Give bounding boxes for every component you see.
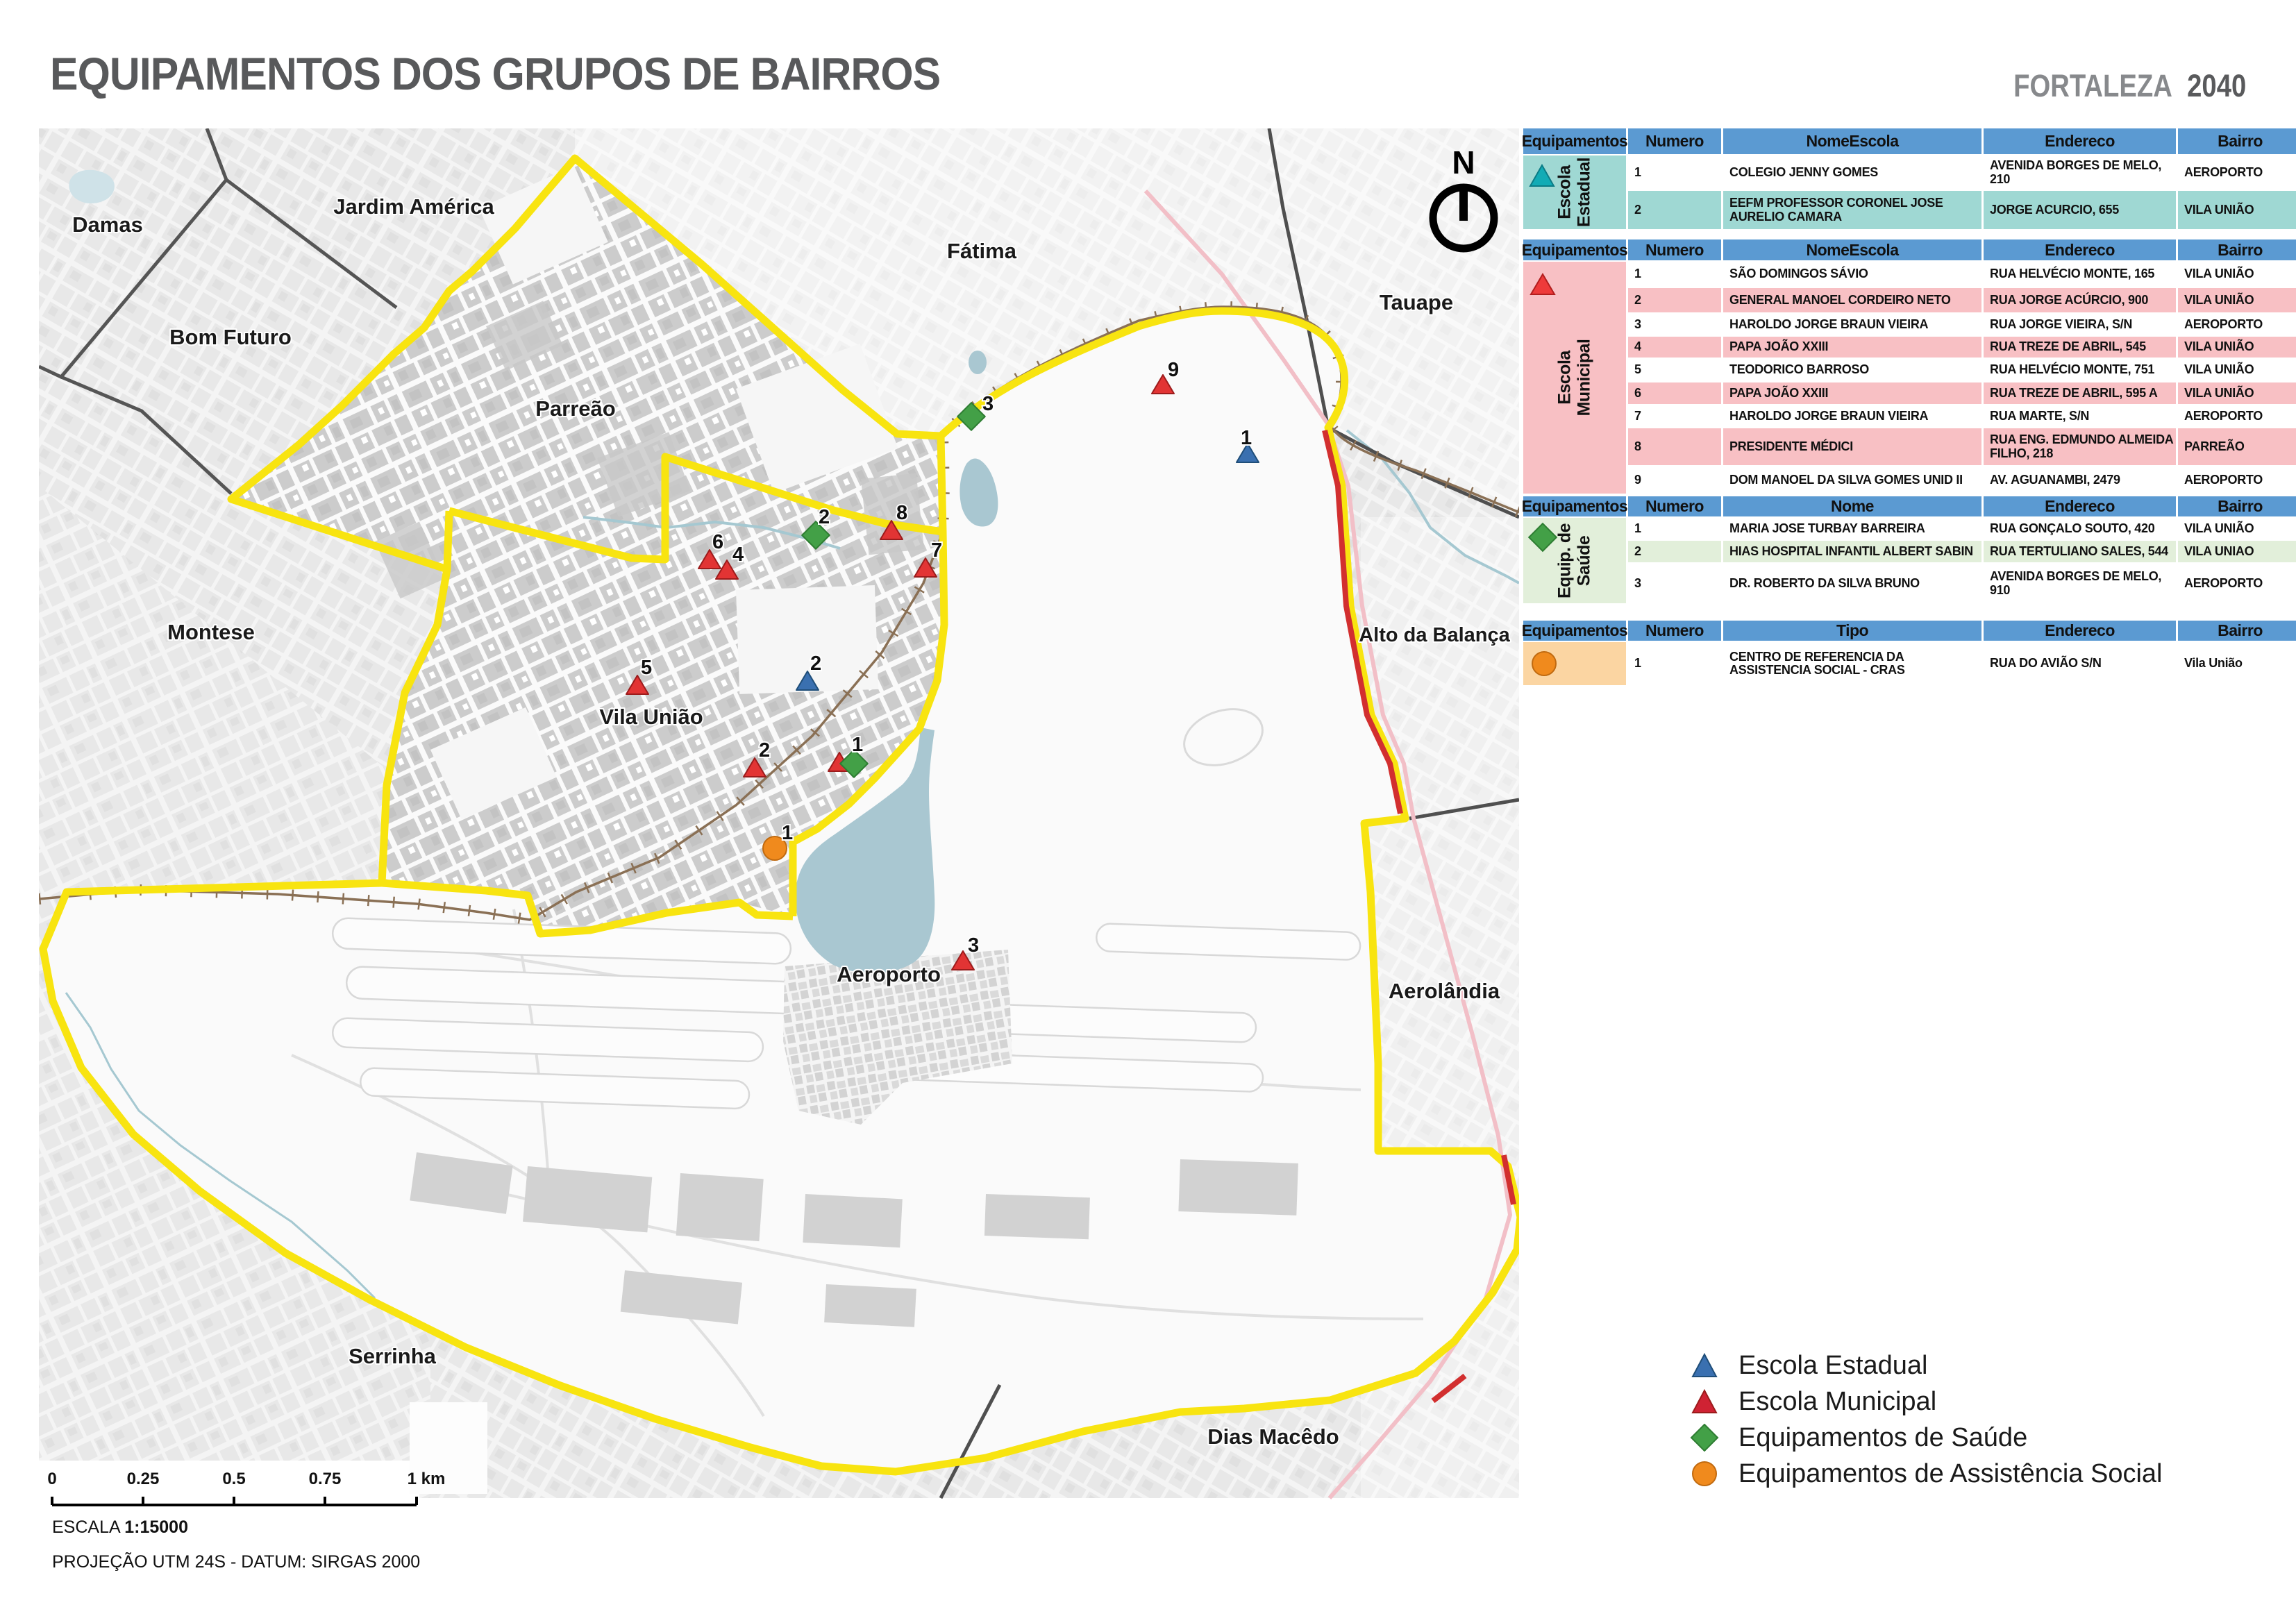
svg-text:N: N	[1452, 144, 1475, 180]
svg-text:Tauape: Tauape	[1380, 290, 1453, 314]
svg-text:PROJEÇÃO UTM 24S - DATUM: SIRG: PROJEÇÃO UTM 24S - DATUM: SIRGAS 2000	[52, 1551, 420, 1572]
svg-text:Alto da Balança: Alto da Balança	[1359, 624, 1510, 646]
svg-text:9: 9	[1168, 359, 1179, 381]
svg-text:Aeroporto: Aeroporto	[837, 962, 941, 986]
svg-text:3: 3	[968, 934, 979, 957]
svg-text:Aerolândia: Aerolândia	[1389, 979, 1500, 1003]
svg-text:Serrinha: Serrinha	[349, 1344, 437, 1368]
svg-text:2: 2	[810, 653, 821, 675]
svg-text:5: 5	[641, 657, 652, 679]
svg-text:1: 1	[852, 734, 863, 756]
svg-text:2: 2	[819, 506, 830, 528]
svg-text:6: 6	[712, 531, 723, 553]
svg-text:Damas: Damas	[72, 212, 143, 237]
svg-text:8: 8	[896, 502, 907, 524]
svg-text:Montese: Montese	[167, 620, 255, 644]
svg-text:0.5: 0.5	[222, 1470, 245, 1488]
svg-text:7: 7	[931, 539, 942, 562]
svg-text:Dias Macêdo: Dias Macêdo	[1207, 1424, 1339, 1449]
svg-text:2: 2	[759, 739, 770, 762]
svg-text:Parreão: Parreão	[535, 396, 615, 421]
svg-text:4: 4	[732, 544, 744, 566]
svg-text:0.75: 0.75	[309, 1470, 342, 1488]
svg-text:ESCALA 1:15000: ESCALA 1:15000	[52, 1517, 188, 1537]
svg-text:1: 1	[1241, 427, 1252, 449]
svg-text:Fátima: Fátima	[947, 239, 1017, 263]
svg-text:3: 3	[982, 393, 994, 415]
svg-text:Bom Futuro: Bom Futuro	[169, 325, 292, 349]
svg-text:Vila União: Vila União	[599, 705, 703, 729]
svg-text:0.25: 0.25	[127, 1470, 160, 1488]
svg-text:Jardim América: Jardim América	[333, 194, 494, 219]
svg-text:0: 0	[47, 1470, 56, 1488]
svg-text:1 km: 1 km	[408, 1470, 446, 1488]
svg-text:1: 1	[782, 822, 793, 844]
